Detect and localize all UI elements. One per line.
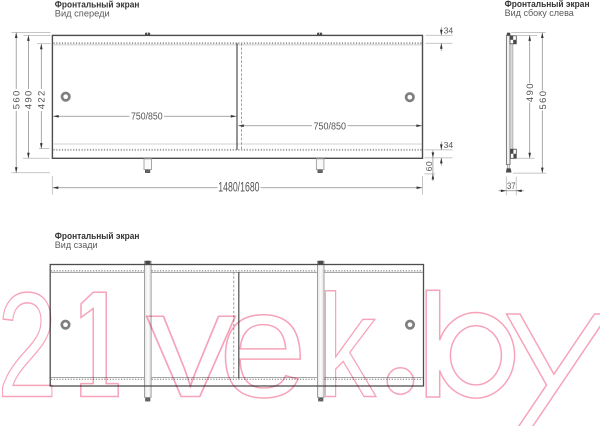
svg-text:750/850: 750/850 bbox=[314, 121, 347, 132]
svg-text:Вид сбоку слева: Вид сбоку слева bbox=[505, 8, 575, 18]
svg-text:37: 37 bbox=[507, 181, 516, 192]
svg-text:60: 60 bbox=[424, 161, 434, 171]
svg-text:34: 34 bbox=[444, 140, 454, 150]
svg-text:34: 34 bbox=[444, 26, 454, 36]
svg-text:422: 422 bbox=[36, 91, 47, 110]
svg-text:560: 560 bbox=[11, 91, 22, 110]
svg-text:490: 490 bbox=[24, 91, 35, 110]
svg-text:k: k bbox=[318, 265, 377, 426]
svg-text:2: 2 bbox=[0, 261, 57, 426]
svg-text:750/850: 750/850 bbox=[131, 112, 163, 123]
svg-text:Вид спереди: Вид спереди bbox=[55, 9, 110, 19]
svg-text:490: 490 bbox=[525, 84, 536, 103]
svg-text:e: e bbox=[219, 259, 308, 426]
svg-text:560: 560 bbox=[538, 91, 549, 110]
svg-text:1480/1680: 1480/1680 bbox=[218, 180, 259, 195]
svg-text:Вид сзади: Вид сзади bbox=[55, 240, 98, 250]
